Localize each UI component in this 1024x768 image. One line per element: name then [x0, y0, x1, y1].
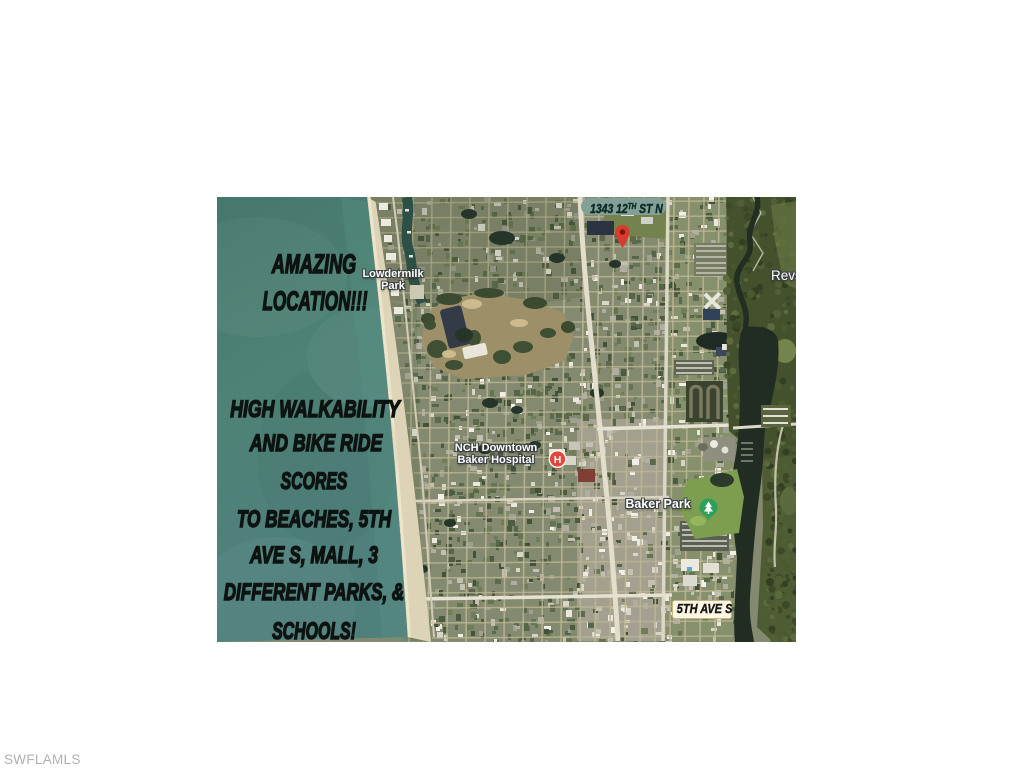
svg-text:H: H [554, 454, 562, 466]
